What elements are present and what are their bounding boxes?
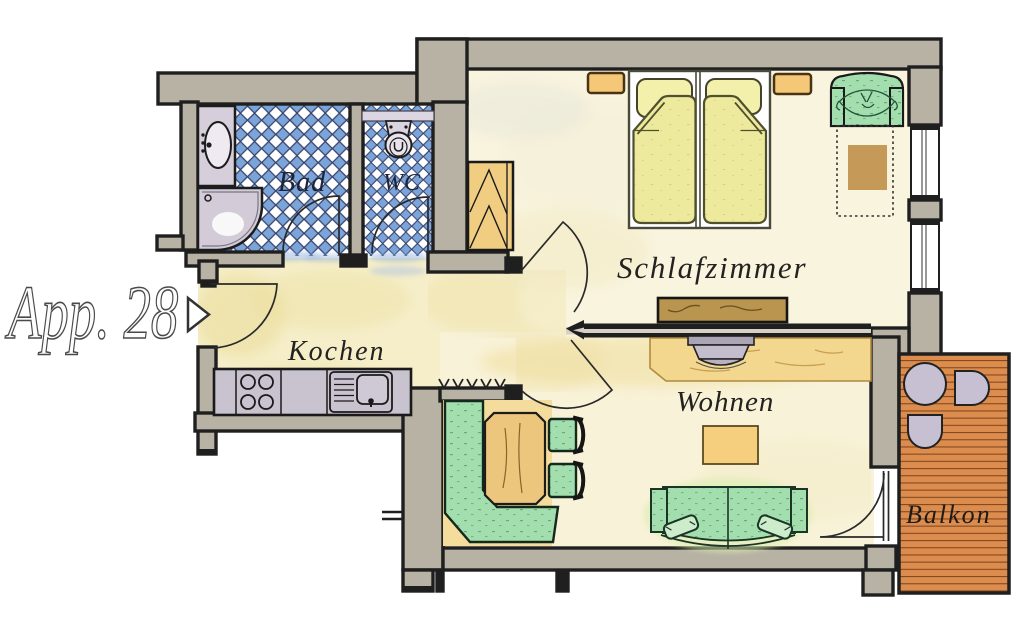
svg-text:Schlafzimmer: Schlafzimmer — [617, 250, 807, 285]
svg-text:WC: WC — [383, 170, 421, 196]
svg-text:App. 28: App. 28 — [5, 271, 179, 355]
svg-text:Kochen: Kochen — [287, 336, 386, 367]
svg-text:Bad: Bad — [278, 167, 326, 198]
svg-text:Balkon: Balkon — [906, 500, 992, 529]
svg-text:Wohnen: Wohnen — [676, 386, 774, 418]
